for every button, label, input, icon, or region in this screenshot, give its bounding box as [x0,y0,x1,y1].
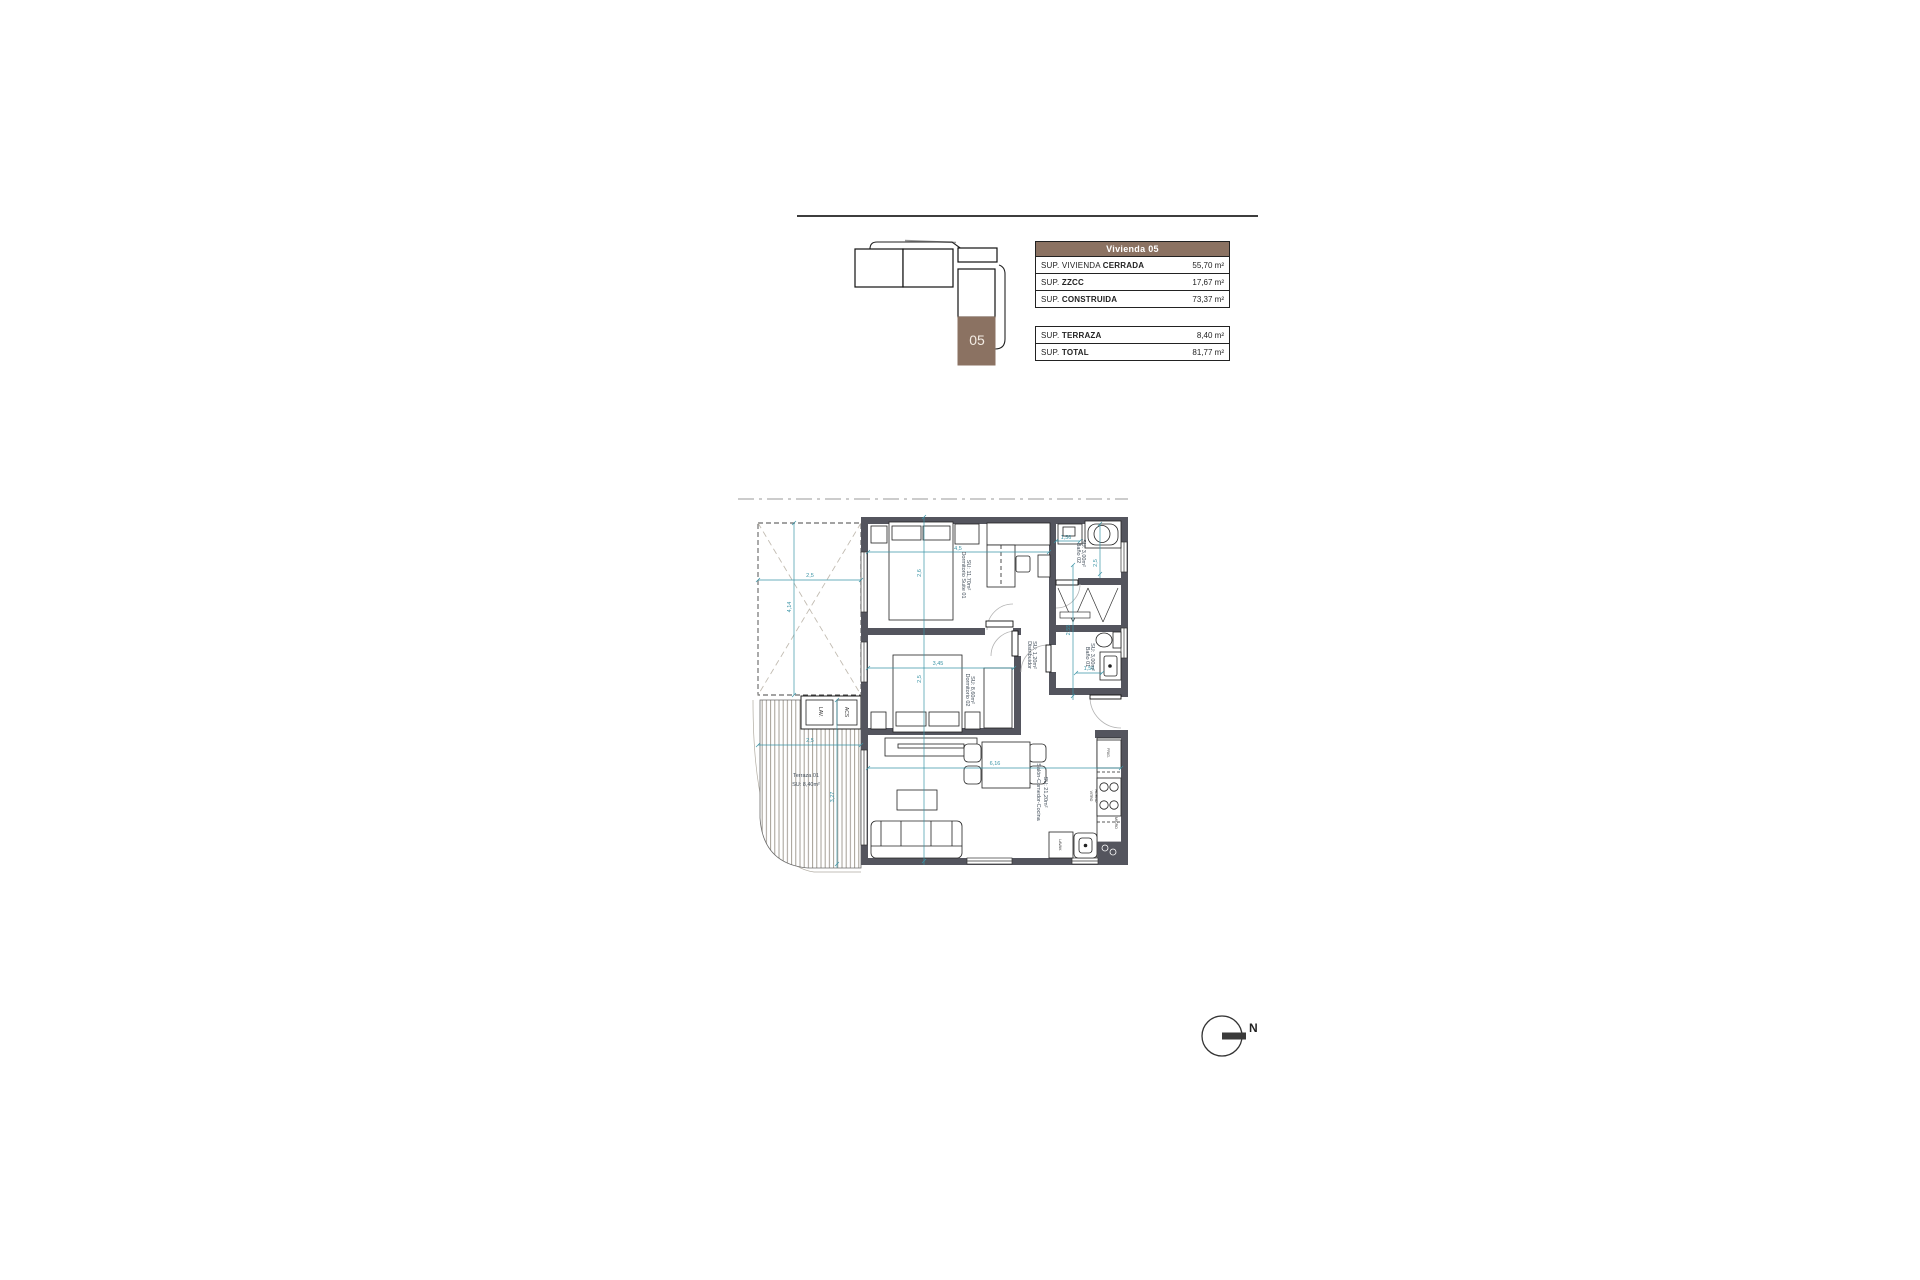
table-row: SUP. VIVIENDA CERRADA 55,70 m² [1036,257,1229,274]
north-pointer [1222,1033,1246,1040]
totals-table: SUP. TERRAZA 8,40 m² SUP. TOTAL 81,77 m² [1035,326,1230,361]
surface-value: 73,37 m² [1192,295,1224,304]
living-furniture [871,738,1046,858]
acs-label: ACS [843,707,849,718]
dim-terraza-width: 2,5 [806,738,814,744]
room-terraza-area: SU: 8,40m² [792,782,820,788]
room-distribuidor-area: SU: 1,20m² [1031,641,1037,669]
dim-patio-width: 2,5 [806,573,814,579]
room-dorm02-area: SU: 8,60m² [969,676,975,704]
key-plan-blocks [855,248,997,317]
plan-sheet: 05 Vivienda 05 SUP. VIVIENDA CERRADA 55,… [0,0,1920,1280]
surface-value: 17,67 m² [1192,278,1224,287]
dim-suite-height: 2,6 [917,569,923,577]
surface-table-header: Vivienda 05 [1036,242,1229,257]
lav-label: LAV. [817,707,823,717]
dim-salon-width: 6,16 [990,761,1001,767]
dim-terraza-height: 3,27 [830,792,836,803]
room-salon-area: SU: 21,20m² [1042,777,1048,808]
surface-table: Vivienda 05 SUP. VIVIENDA CERRADA 55,70 … [1035,241,1230,308]
hob-label: VITRO [1089,791,1093,802]
table-row: SUP. ZZCC 17,67 m² [1036,274,1229,291]
table-row: SUP. CONSTRUIDA 73,37 m² [1036,291,1229,307]
room-salon-name: Salón-Comedor-Cocina [1035,763,1041,821]
building-key-plan: 05 [845,235,1010,370]
dim-dorm02-width: 3,45 [933,661,944,667]
north-arrow: N [1195,1010,1260,1065]
dishwasher-label: LAVAV. [1058,839,1062,851]
micro-label: MICRO [1114,817,1118,829]
room-terraza-name: Terraza 01 [793,773,819,779]
table-row: SUP. TOTAL 81,77 m² [1036,344,1229,360]
room-suite-area: SU: 11,70m² [965,560,971,591]
oven-label: HORNO [1094,789,1098,802]
fridge-label: FRIG. [1106,748,1110,758]
dim-distribuidor: 2,55 [1066,625,1072,636]
surface-value: 81,77 m² [1192,348,1224,357]
dim-bano02-width: 1,56 [1061,535,1072,541]
room-bano02-area: SU: 3,00m² [1080,539,1086,567]
table-row: SUP. TERRAZA 8,40 m² [1036,327,1229,344]
surface-value: 8,40 m² [1197,331,1224,340]
floor-plan: LAV. ACS [735,488,1140,890]
dim-patio-height: 4,14 [787,602,793,613]
patio-void [758,523,861,695]
lav-acs-unit [801,696,861,729]
dim-dorm02-height: 2,5 [917,675,923,683]
north-label: N [1249,1021,1258,1035]
dim-bano02-height: 2,5 [1093,559,1099,567]
header-rule [797,215,1258,217]
unit-05-label: 05 [969,332,985,348]
surface-value: 55,70 m² [1192,261,1224,270]
room-bano01-area: SU: 3,00m² [1089,643,1095,671]
